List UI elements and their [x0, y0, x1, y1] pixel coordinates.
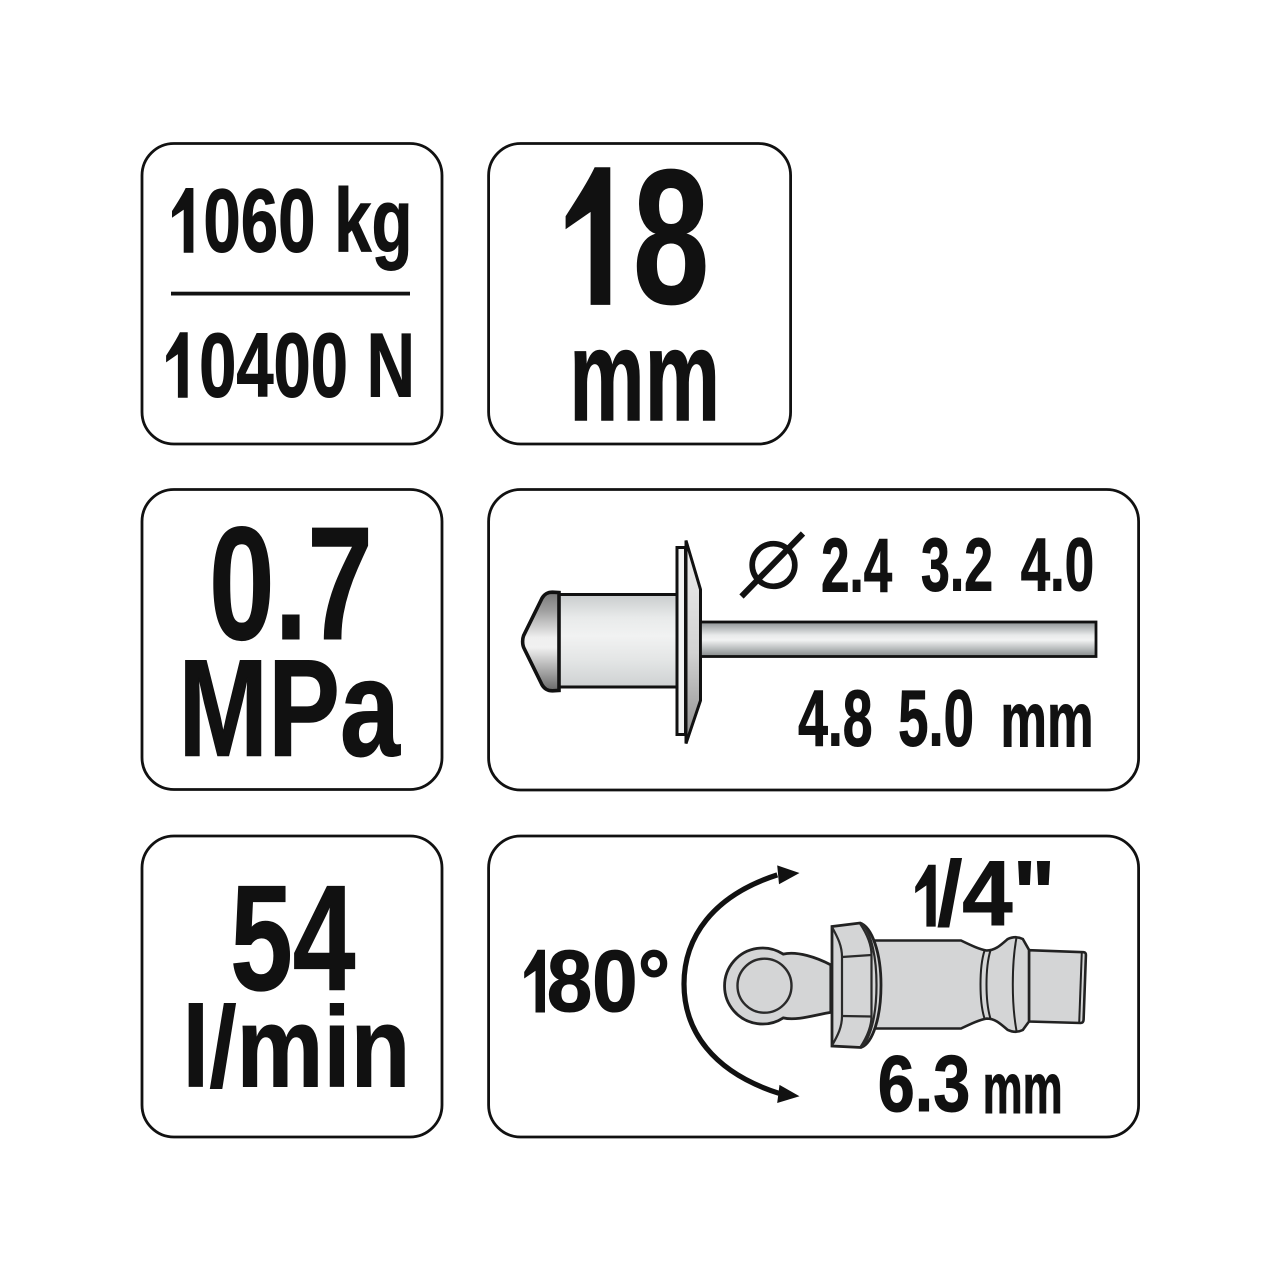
svg-text:/4": /4" — [937, 843, 1055, 945]
svg-text:060 kg: 060 kg — [203, 170, 412, 271]
svg-text:80°: 80° — [547, 932, 671, 1030]
svg-text:mm: mm — [983, 1049, 1063, 1129]
svg-text:mm: mm — [569, 302, 720, 448]
svg-text:0400 N: 0400 N — [199, 314, 415, 416]
svg-text:4.8: 4.8 — [798, 674, 873, 763]
svg-text:2.4: 2.4 — [821, 523, 892, 608]
svg-text:6.3: 6.3 — [878, 1039, 971, 1128]
svg-text:5.0: 5.0 — [898, 674, 974, 763]
svg-text:4.0: 4.0 — [1021, 523, 1094, 607]
svg-text:mm: mm — [1000, 678, 1093, 764]
svg-text:3.2: 3.2 — [921, 523, 993, 607]
svg-text:l/min: l/min — [182, 985, 410, 1112]
svg-text:MPa: MPa — [178, 632, 400, 786]
